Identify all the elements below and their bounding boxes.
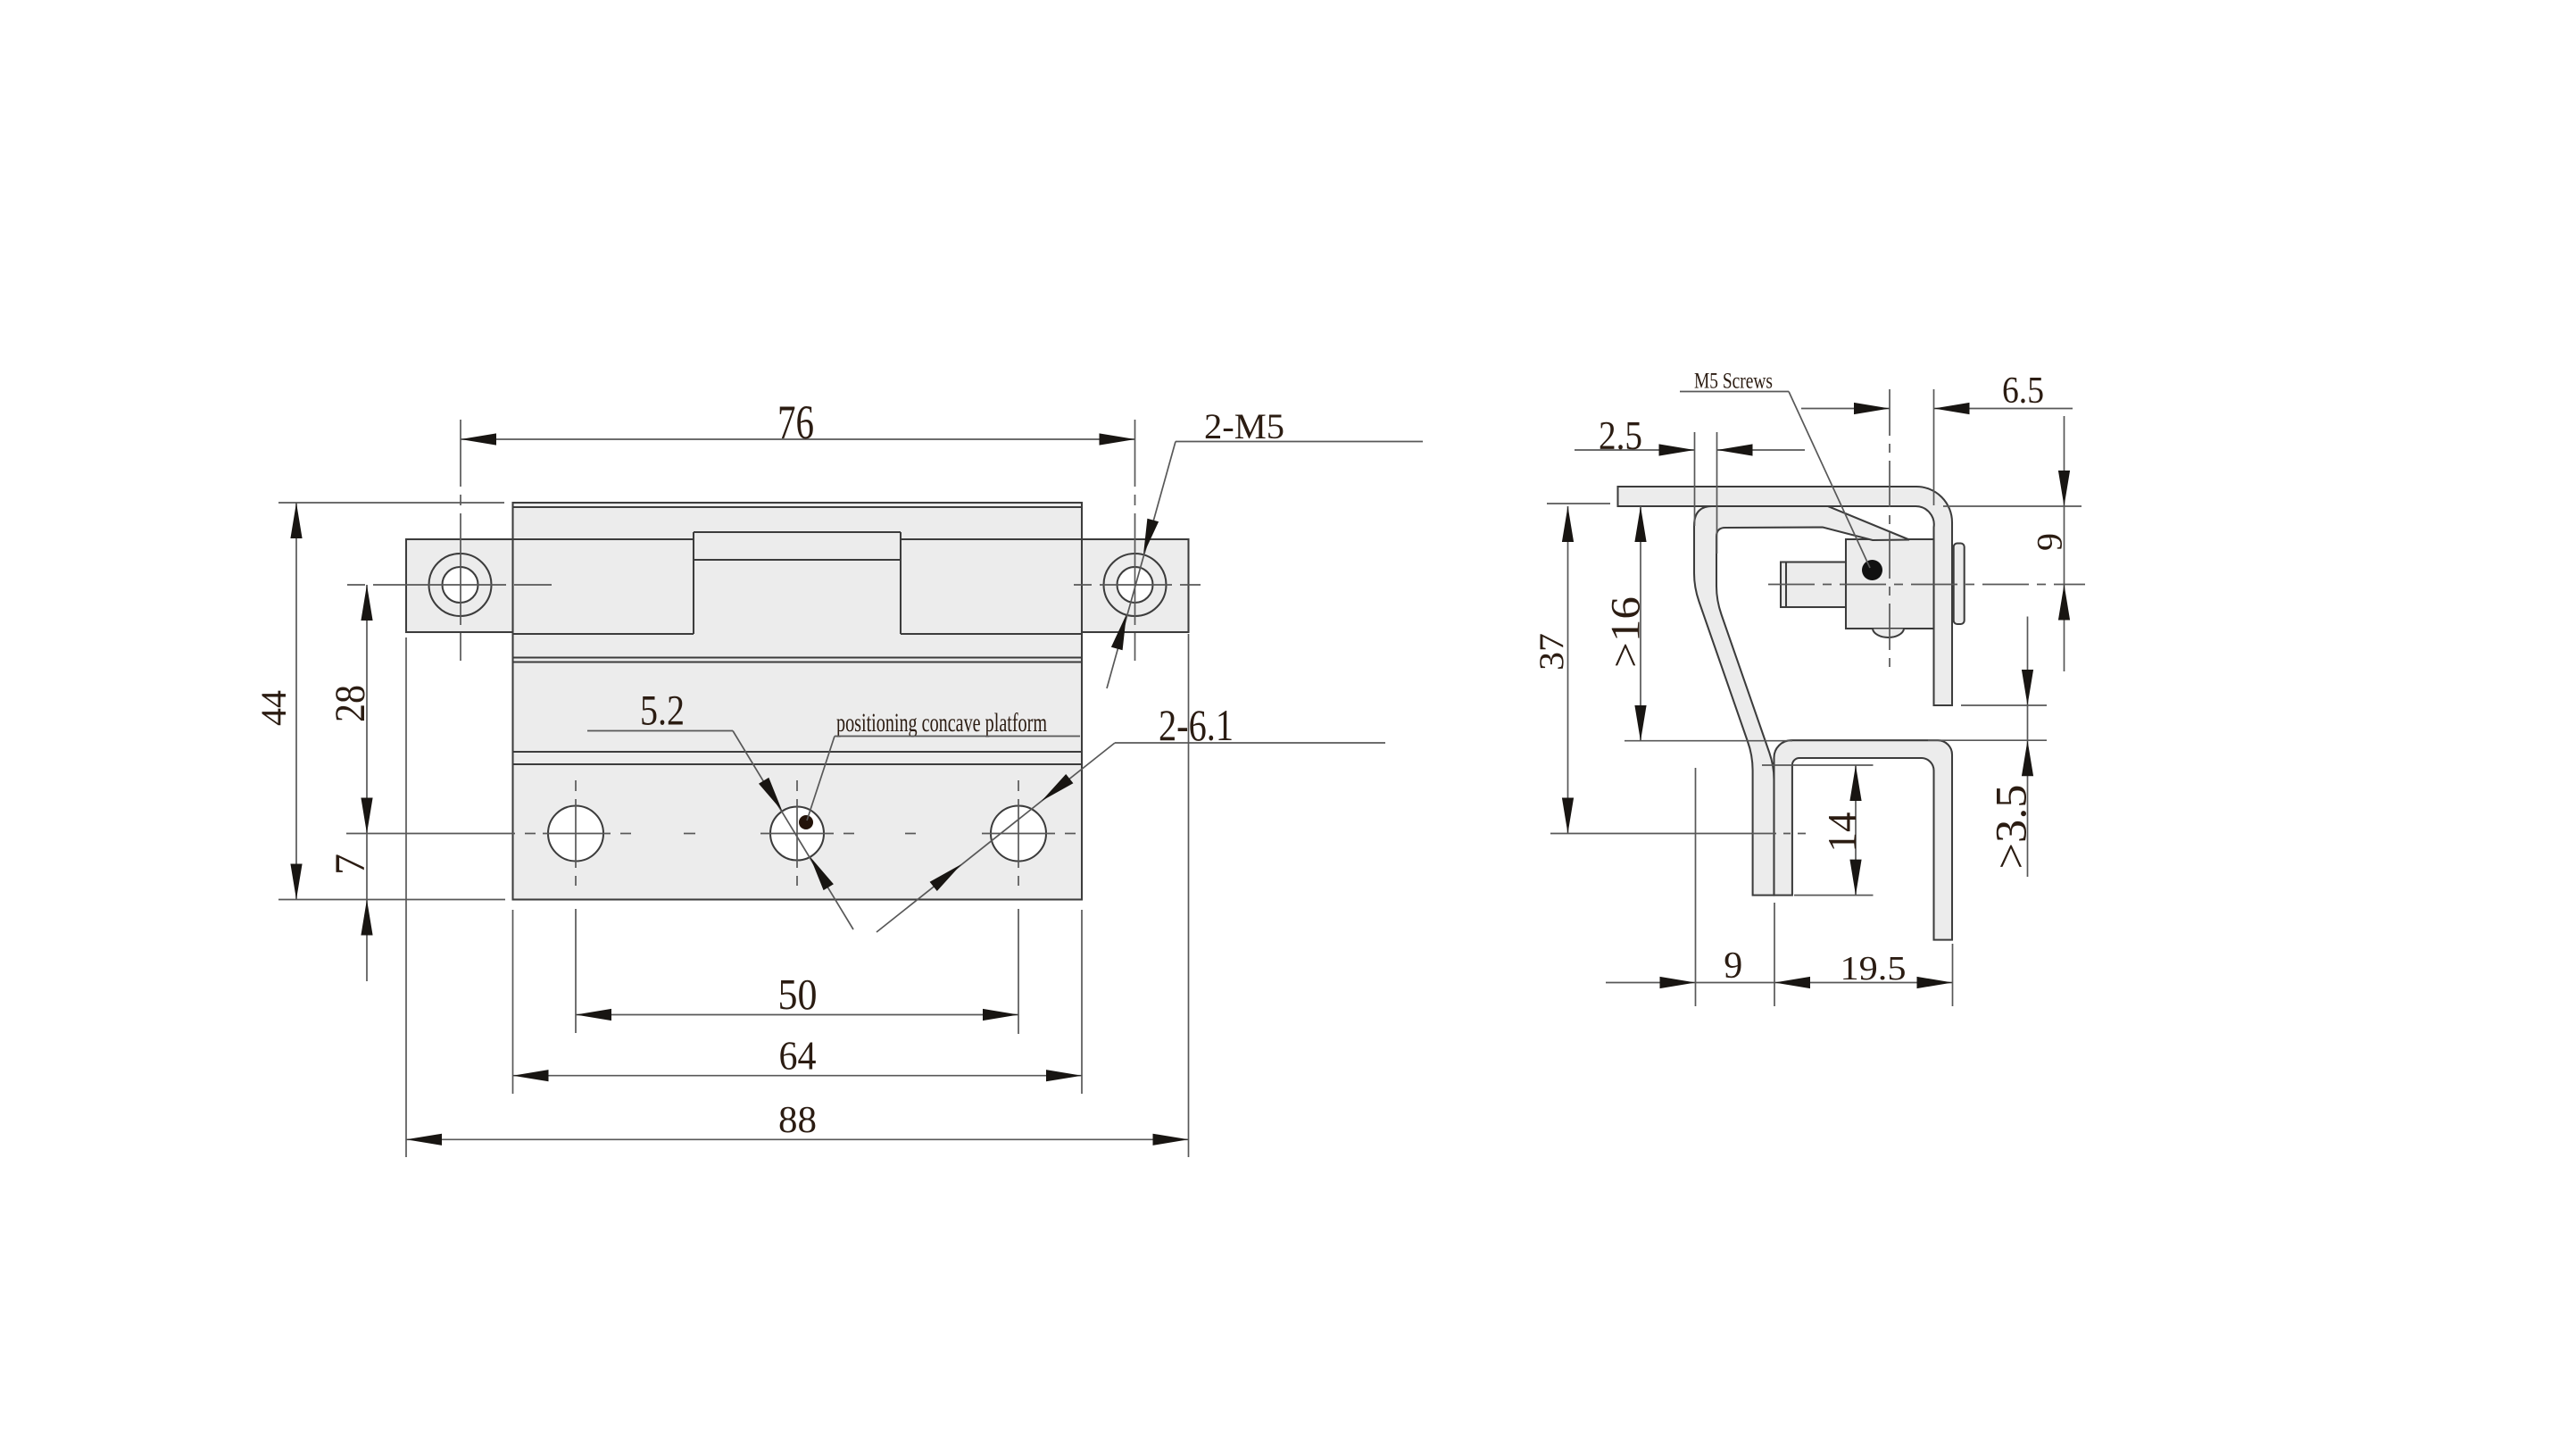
svg-text:64: 64 <box>779 1034 817 1079</box>
svg-text:50: 50 <box>778 970 818 1019</box>
svg-text:6.5: 6.5 <box>2002 371 2044 412</box>
svg-text:9: 9 <box>2030 533 2070 551</box>
svg-text:44: 44 <box>253 690 294 726</box>
svg-text:positioning concave platform: positioning concave platform <box>836 708 1047 737</box>
svg-text:>3.5: >3.5 <box>1986 785 2036 870</box>
svg-text:>16: >16 <box>1603 596 1649 668</box>
svg-text:M5 Screws: M5 Screws <box>1694 370 1773 394</box>
svg-text:2.5: 2.5 <box>1599 413 1642 458</box>
svg-text:7: 7 <box>327 854 374 875</box>
svg-text:14: 14 <box>1820 812 1865 853</box>
svg-text:19.5: 19.5 <box>1841 950 1907 987</box>
svg-text:28: 28 <box>327 685 374 722</box>
svg-text:76: 76 <box>777 396 814 449</box>
svg-text:9: 9 <box>1724 946 1742 987</box>
svg-text:5.2: 5.2 <box>640 687 685 735</box>
svg-text:37: 37 <box>1533 633 1571 671</box>
svg-text:88: 88 <box>778 1100 817 1141</box>
svg-text:2-M5: 2-M5 <box>1204 406 1284 446</box>
